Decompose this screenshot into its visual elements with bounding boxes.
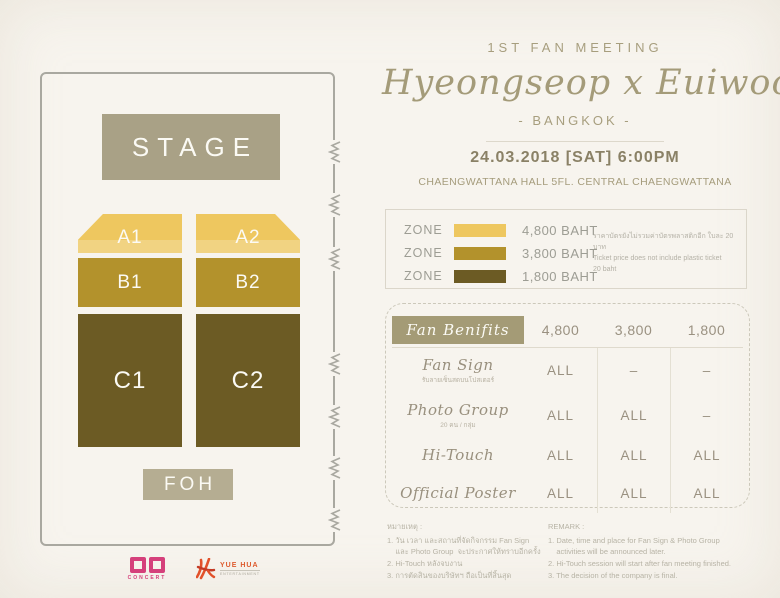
zone-c-price: 1,800 BAHT [522, 269, 598, 284]
dd-concert-logo: CONCERT [122, 557, 172, 581]
remarks-english-title: REMARK : [548, 521, 768, 533]
benefit-row-official-poster: Official Poster ALL ALL ALL [392, 473, 743, 513]
benefit-name: Hi-Touch [392, 446, 524, 464]
note-thai: ราคาบัตรยังไม่รวมค่าบัตรพลาสติกอีก ใบละ … [593, 232, 735, 254]
note-english-1: Ticket price does not include plastic ti… [593, 254, 735, 265]
fan-meeting-poster: STAGE A1 A2 B1 B2 C1 C2 FOH CONCERT YUE … [0, 0, 780, 598]
event-datetime: 24.03.2018 [SAT] 6:00PM [382, 149, 768, 167]
remark-line: และ Photo Group จะประกาศให้ทราบอีกครั้ง [387, 546, 545, 558]
fan-benefits-table: Fan Benifits 4,800 3,800 1,800 Fan Sign … [385, 303, 750, 508]
zone-b1: B1 [78, 258, 182, 307]
zone-b-swatch [454, 247, 506, 260]
benefit-subtitle: รับลายเซ็นสดบนโปสเตอร์ [392, 375, 524, 385]
info-column: 1ST FAN MEETING Hyeongseop x Euiwoong - … [382, 0, 768, 188]
remark-line: 2. Hi-Touch หลังจบงาน [387, 558, 545, 570]
door-marker-icon [326, 405, 343, 429]
benefit-name: Fan Sign [392, 356, 524, 374]
benefit-row-photo-group: Photo Group 20 คน / กลุ่ม ALL ALL – [392, 393, 743, 437]
benefit-name: Photo Group [392, 401, 524, 419]
yuehua-logo-icon [196, 558, 216, 580]
door-marker-icon [326, 140, 343, 164]
divider [486, 141, 664, 142]
yuehua-sub-label: ENTERTAINMENT [220, 570, 260, 577]
remark-line: 1. Date, time and place for Fan Sign & P… [548, 535, 768, 547]
benefit-value: ALL [670, 437, 743, 473]
benefits-header-row: Fan Benifits 4,800 3,800 1,800 [392, 312, 743, 348]
remark-line: 1. วัน เวลา และสถานที่จัดกิจกรรม Fan Sig… [387, 535, 545, 547]
benefit-name: Official Poster [392, 484, 524, 502]
remark-line: 3. การตัดสินของบริษัทฯ ถือเป็นที่สิ้นสุด [387, 570, 545, 582]
yuehua-name-label: YUE HUA [220, 561, 260, 570]
benefit-value: – [597, 348, 670, 393]
col-head-3800: 3,800 [597, 322, 670, 338]
benefits-title: Fan Benifits [392, 316, 524, 344]
city-label: - BANGKOK - [382, 113, 768, 128]
benefit-value: – [670, 348, 743, 393]
stage-block: STAGE [102, 114, 280, 180]
benefit-value: – [670, 393, 743, 437]
remark-line: 2. Hi-Touch session will start after fan… [548, 558, 768, 570]
zone-a-swatch [454, 224, 506, 237]
meeting-label: 1ST FAN MEETING [382, 40, 768, 55]
zone-b2: B2 [196, 258, 300, 307]
dd-logo-label: CONCERT [122, 575, 172, 581]
zone-label: ZONE [404, 223, 450, 237]
note-english-2: 20 baht [593, 265, 735, 276]
remarks-thai: หมายเหตุ : 1. วัน เวลา และสถานที่จัดกิจก… [387, 521, 545, 581]
remark-line: activities will be announced later. [548, 546, 768, 558]
zone-c2: C2 [196, 314, 300, 447]
door-marker-icon [326, 508, 343, 532]
col-head-4800: 4,800 [524, 322, 597, 338]
zone-c-swatch [454, 270, 506, 283]
benefit-row-fan-sign: Fan Sign รับลายเซ็นสดบนโปสเตอร์ ALL – – [392, 348, 743, 393]
benefit-value: ALL [597, 473, 670, 513]
benefit-value: ALL [524, 348, 597, 393]
zone-a-price: 4,800 BAHT [522, 223, 598, 238]
benefit-value: ALL [524, 437, 597, 473]
zone-label: ZONE [404, 246, 450, 260]
door-marker-icon [326, 352, 343, 376]
zone-c1: C1 [78, 314, 182, 447]
plastic-ticket-note: ราคาบัตรยังไม่รวมค่าบัตรพลาสติกอีก ใบละ … [593, 232, 735, 275]
benefit-row-hi-touch: Hi-Touch ALL ALL ALL [392, 437, 743, 473]
door-marker-icon [326, 456, 343, 480]
remarks-thai-title: หมายเหตุ : [387, 521, 545, 533]
benefit-value: ALL [524, 393, 597, 437]
benefit-value: ALL [524, 473, 597, 513]
event-venue: CHAENGWATTANA HALL 5FL. CENTRAL CHAENGWA… [382, 176, 768, 188]
dd-logo-icon [122, 557, 172, 573]
benefit-value: ALL [597, 437, 670, 473]
yuehua-entertainment-logo: YUE HUA ENTERTAINMENT [196, 558, 260, 580]
zone-label: ZONE [404, 269, 450, 283]
col-head-1800: 1,800 [670, 322, 743, 338]
foh-block: FOH [143, 469, 233, 500]
remarks-english: REMARK : 1. Date, time and place for Fan… [548, 521, 768, 581]
door-marker-icon [326, 193, 343, 217]
benefit-subtitle: 20 คน / กลุ่ม [392, 420, 524, 430]
zone-b-price: 3,800 BAHT [522, 246, 598, 261]
benefit-value: ALL [597, 393, 670, 437]
event-title: Hyeongseop x Euiwoong [382, 63, 768, 103]
remark-line: 3. The decision of the company is final. [548, 570, 768, 582]
price-legend-box: ZONE 4,800 BAHT ZONE 3,800 BAHT ZONE 1,8… [385, 209, 747, 289]
benefit-value: ALL [670, 473, 743, 513]
door-marker-icon [326, 247, 343, 271]
